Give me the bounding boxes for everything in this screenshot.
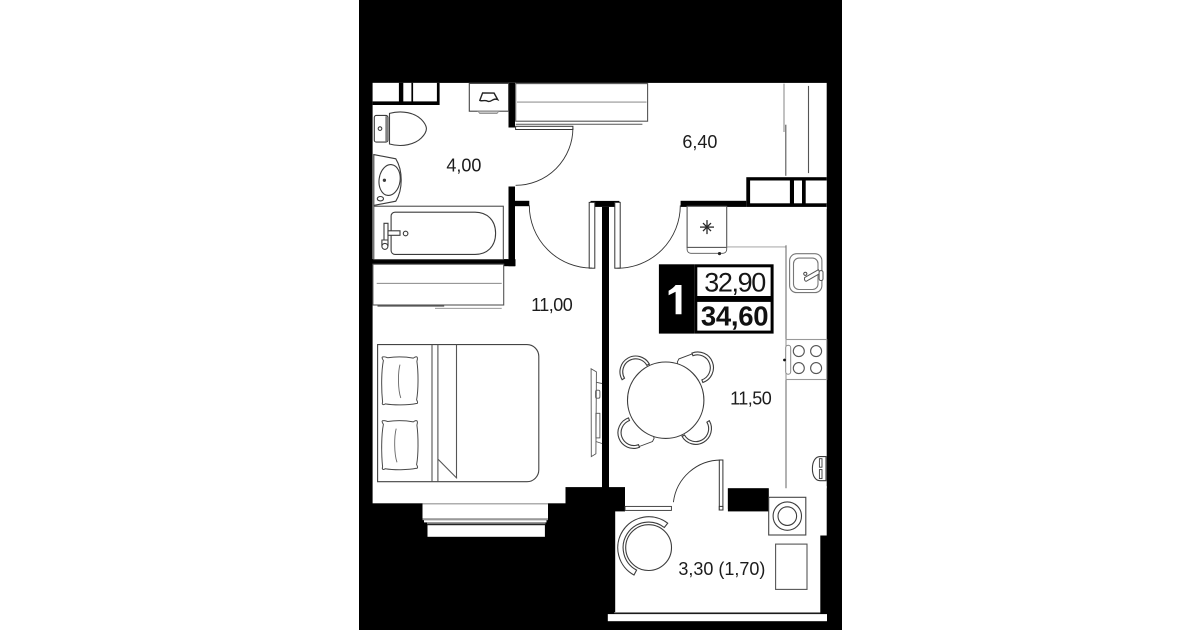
- svg-text:32,90: 32,90: [704, 267, 765, 297]
- svg-text:11,50: 11,50: [730, 389, 772, 409]
- svg-text:11,00: 11,00: [531, 295, 573, 315]
- svg-text:6,40: 6,40: [682, 132, 717, 152]
- svg-text:34,60: 34,60: [701, 301, 768, 332]
- svg-text:3,30 (1,70): 3,30 (1,70): [678, 559, 765, 579]
- svg-text:4,00: 4,00: [446, 155, 481, 175]
